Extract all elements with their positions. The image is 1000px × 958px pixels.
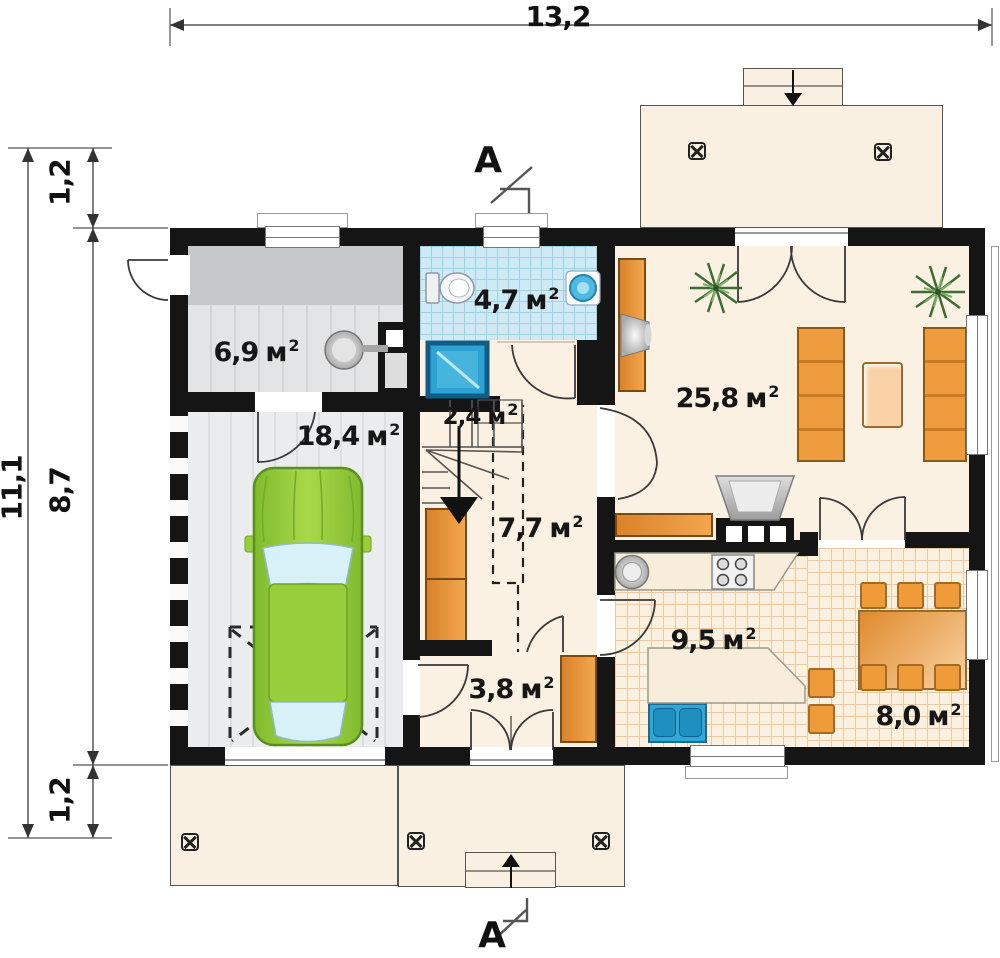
dining-chair <box>897 582 924 609</box>
column-marker <box>592 832 610 850</box>
column-marker <box>407 832 425 850</box>
living-room-floor <box>615 246 969 540</box>
room-area-dining: 8,0м2 <box>875 700 960 732</box>
wall-segment <box>322 392 403 412</box>
flue-panel <box>385 353 407 388</box>
fireplace-hearth <box>716 518 794 556</box>
flue-opening <box>386 330 403 347</box>
column-marker <box>874 143 892 161</box>
wall-segment <box>553 747 690 765</box>
wall-segment <box>340 228 483 246</box>
bar-stool <box>808 704 835 734</box>
front-door-opening <box>470 747 553 765</box>
wall-segment <box>597 657 615 747</box>
room-area-kitchen: 9,5м2 <box>670 624 755 656</box>
sofa <box>923 327 967 462</box>
wall-segment <box>403 246 420 660</box>
bench-cushion <box>653 708 676 737</box>
dining-chair <box>934 664 961 691</box>
garage-hatched-wall <box>170 390 188 747</box>
hearth-vent <box>770 526 786 542</box>
window-sill <box>685 766 788 779</box>
room-area-stairs: 2,4м2 <box>443 400 518 430</box>
garage-apron <box>170 765 398 886</box>
room-area-garage: 18,4м2 <box>297 420 400 452</box>
entrance-steps <box>465 852 556 888</box>
wall-segment <box>188 392 255 412</box>
side-door <box>128 260 168 300</box>
window <box>483 226 540 248</box>
wall-segment <box>800 532 818 556</box>
pantry-cabinet <box>560 655 597 743</box>
chimney-block <box>378 322 418 395</box>
wall-segment <box>418 640 492 656</box>
dining-chair <box>860 664 887 691</box>
terrace-door-opening <box>735 228 848 246</box>
window <box>265 226 340 248</box>
wall-segment <box>170 747 225 765</box>
wall-segment <box>785 747 985 765</box>
window <box>966 570 988 660</box>
sideboard <box>615 513 713 537</box>
dimension-height-bottom: 1,2 <box>44 771 77 831</box>
wall-segment <box>969 455 985 570</box>
dining-chair <box>897 664 924 691</box>
room-area-bathroom: 4,7м2 <box>473 284 558 316</box>
floor-plan: 13,2 11,1 1,2 8,7 1,2 A A 6,9м2 4,7м2 18… <box>0 0 1000 958</box>
wall-segment <box>597 246 615 405</box>
wall-segment <box>905 532 969 548</box>
dimension-height-middle: 8,7 <box>44 461 77 521</box>
hearth-vent <box>726 526 742 542</box>
hall-wardrobe <box>425 508 467 645</box>
dining-chair <box>934 582 961 609</box>
bench-cushion <box>679 708 702 737</box>
room-area-living-room: 25,8м2 <box>676 382 779 414</box>
window-sill <box>991 246 999 762</box>
section-label-top: A <box>468 140 508 181</box>
room-area-vestibule: 3,8м2 <box>468 673 553 705</box>
wall-segment <box>577 340 597 405</box>
hearth-vent <box>748 526 764 542</box>
wall-segment <box>969 660 985 765</box>
wall-segment <box>848 228 985 246</box>
side-door-opening <box>168 255 190 295</box>
tv-cabinet <box>618 258 646 392</box>
coffee-table <box>862 362 903 428</box>
room-area-utility: 6,9м2 <box>213 336 298 368</box>
column-marker <box>688 142 706 160</box>
dimension-height-top: 1,2 <box>44 153 77 213</box>
wall-segment <box>540 228 735 246</box>
garage-door-opening <box>225 747 385 765</box>
kitchen-bench <box>648 703 707 743</box>
wall-segment <box>170 228 188 255</box>
bar-stool <box>808 668 835 698</box>
wall-segment <box>403 715 420 747</box>
terrace <box>640 105 943 228</box>
dining-chair <box>860 582 887 609</box>
wall-segment <box>170 295 188 390</box>
terrace-steps <box>743 68 843 106</box>
garage-floor <box>188 412 403 747</box>
window <box>690 745 785 767</box>
window <box>966 315 988 455</box>
dimension-height-total: 11,1 <box>0 461 29 521</box>
column-marker <box>181 833 199 851</box>
section-label-bottom: A <box>472 915 512 956</box>
wall-segment <box>969 228 985 315</box>
dimension-width: 13,2 <box>498 0 618 33</box>
wall-segment <box>385 747 470 765</box>
wardrobe-divider <box>427 578 465 580</box>
room-area-hall: 7,7м2 <box>497 512 582 544</box>
sofa <box>797 327 845 462</box>
utility-floor-counter <box>188 246 403 305</box>
